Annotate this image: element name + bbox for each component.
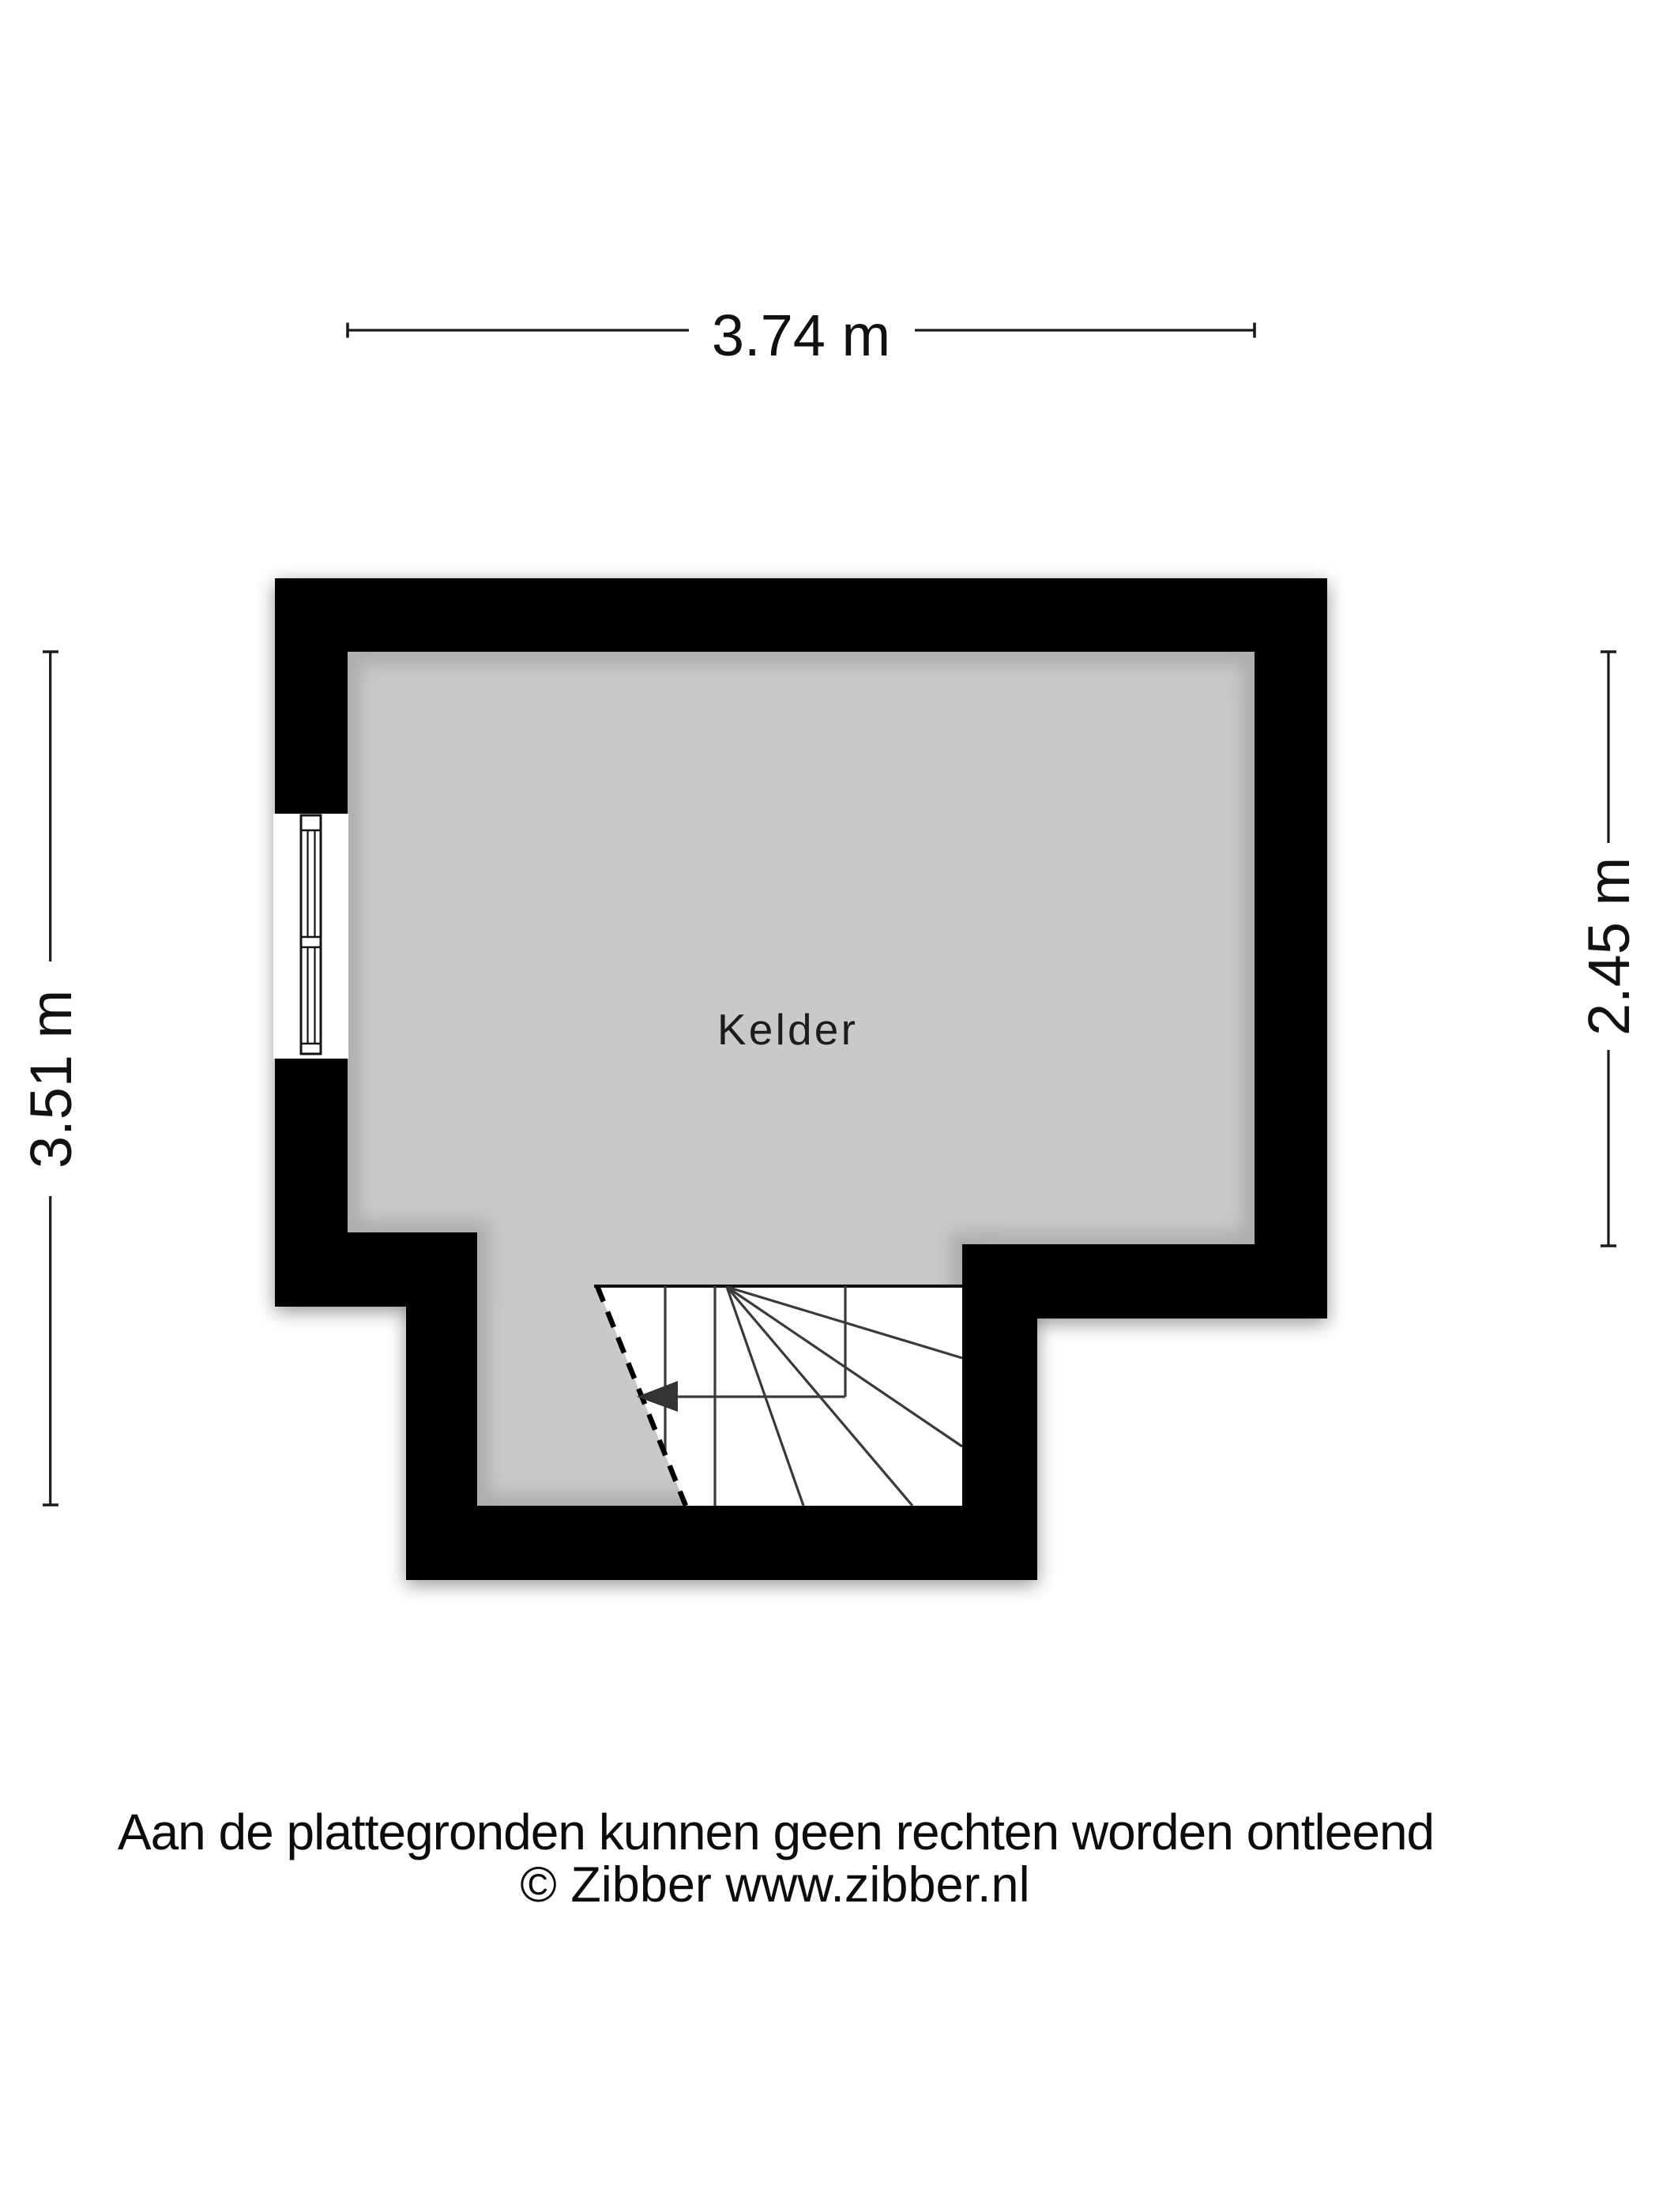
svg-text:3.74 m: 3.74 m bbox=[712, 303, 890, 368]
svg-text:3.51 m: 3.51 m bbox=[18, 990, 84, 1168]
svg-text:Kelder: Kelder bbox=[717, 1005, 858, 1054]
svg-text:Aan de plattegronden kunnen ge: Aan de plattegronden kunnen geen rechten… bbox=[118, 1804, 1434, 1860]
svg-text:2.45 m: 2.45 m bbox=[1576, 857, 1642, 1036]
svg-text:© Zibber www.zibber.nl: © Zibber www.zibber.nl bbox=[520, 1857, 1029, 1913]
